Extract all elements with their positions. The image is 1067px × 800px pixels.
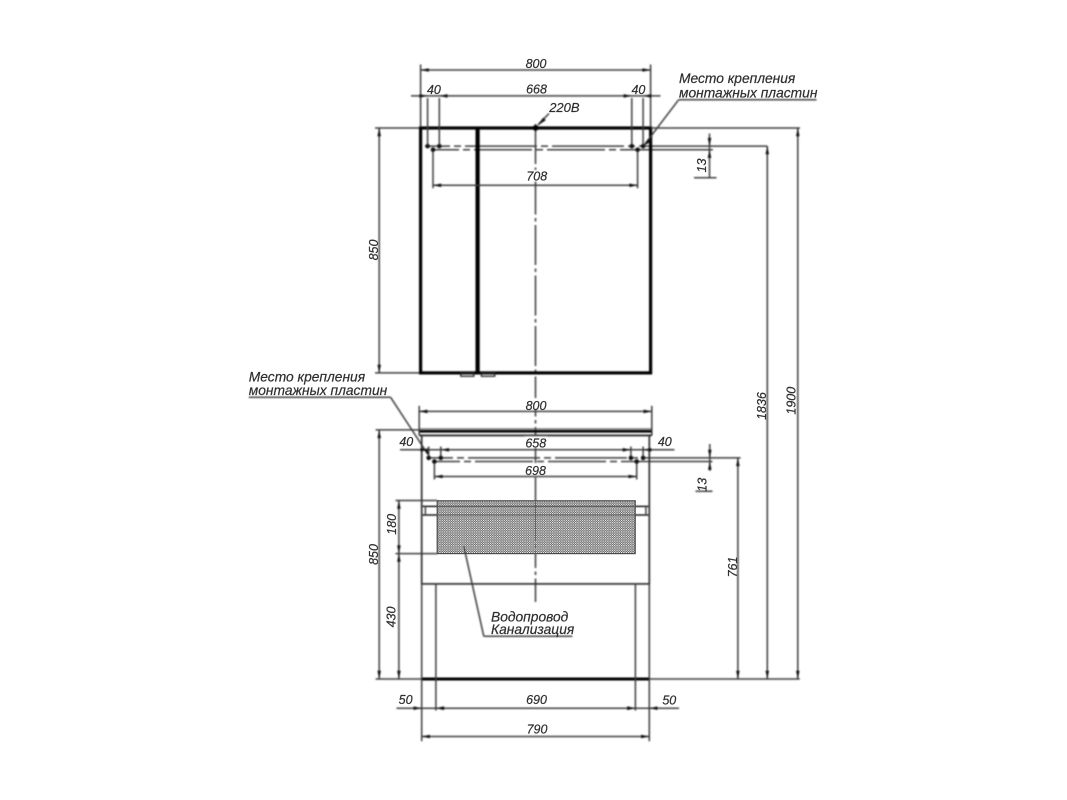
svg-text:40: 40 [399,435,413,449]
svg-text:690: 690 [526,693,547,707]
svg-text:698: 698 [525,464,546,478]
svg-text:монтажных пластин: монтажных пластин [249,383,388,398]
svg-text:1836: 1836 [755,392,769,420]
svg-text:40: 40 [658,435,672,449]
svg-text:800: 800 [526,57,547,71]
svg-text:220В: 220В [548,100,580,115]
svg-text:800: 800 [526,399,547,413]
svg-text:13: 13 [695,478,709,492]
svg-text:790: 790 [527,722,548,736]
svg-text:180: 180 [385,514,399,535]
svg-text:монтажных пластин: монтажных пластин [679,86,818,101]
svg-text:40: 40 [427,83,441,97]
svg-text:850: 850 [367,544,381,565]
svg-text:Канализация: Канализация [491,622,575,637]
svg-text:40: 40 [631,83,645,97]
svg-text:1900: 1900 [784,387,798,415]
svg-text:Место крепления: Место крепления [679,71,796,86]
svg-text:50: 50 [399,693,413,707]
svg-text:50: 50 [662,693,676,707]
svg-text:13: 13 [695,159,709,173]
svg-text:658: 658 [525,436,546,450]
svg-text:430: 430 [385,607,399,628]
svg-text:761: 761 [726,557,740,578]
svg-text:668: 668 [526,83,547,97]
svg-text:850: 850 [367,240,381,261]
svg-text:708: 708 [526,169,547,183]
